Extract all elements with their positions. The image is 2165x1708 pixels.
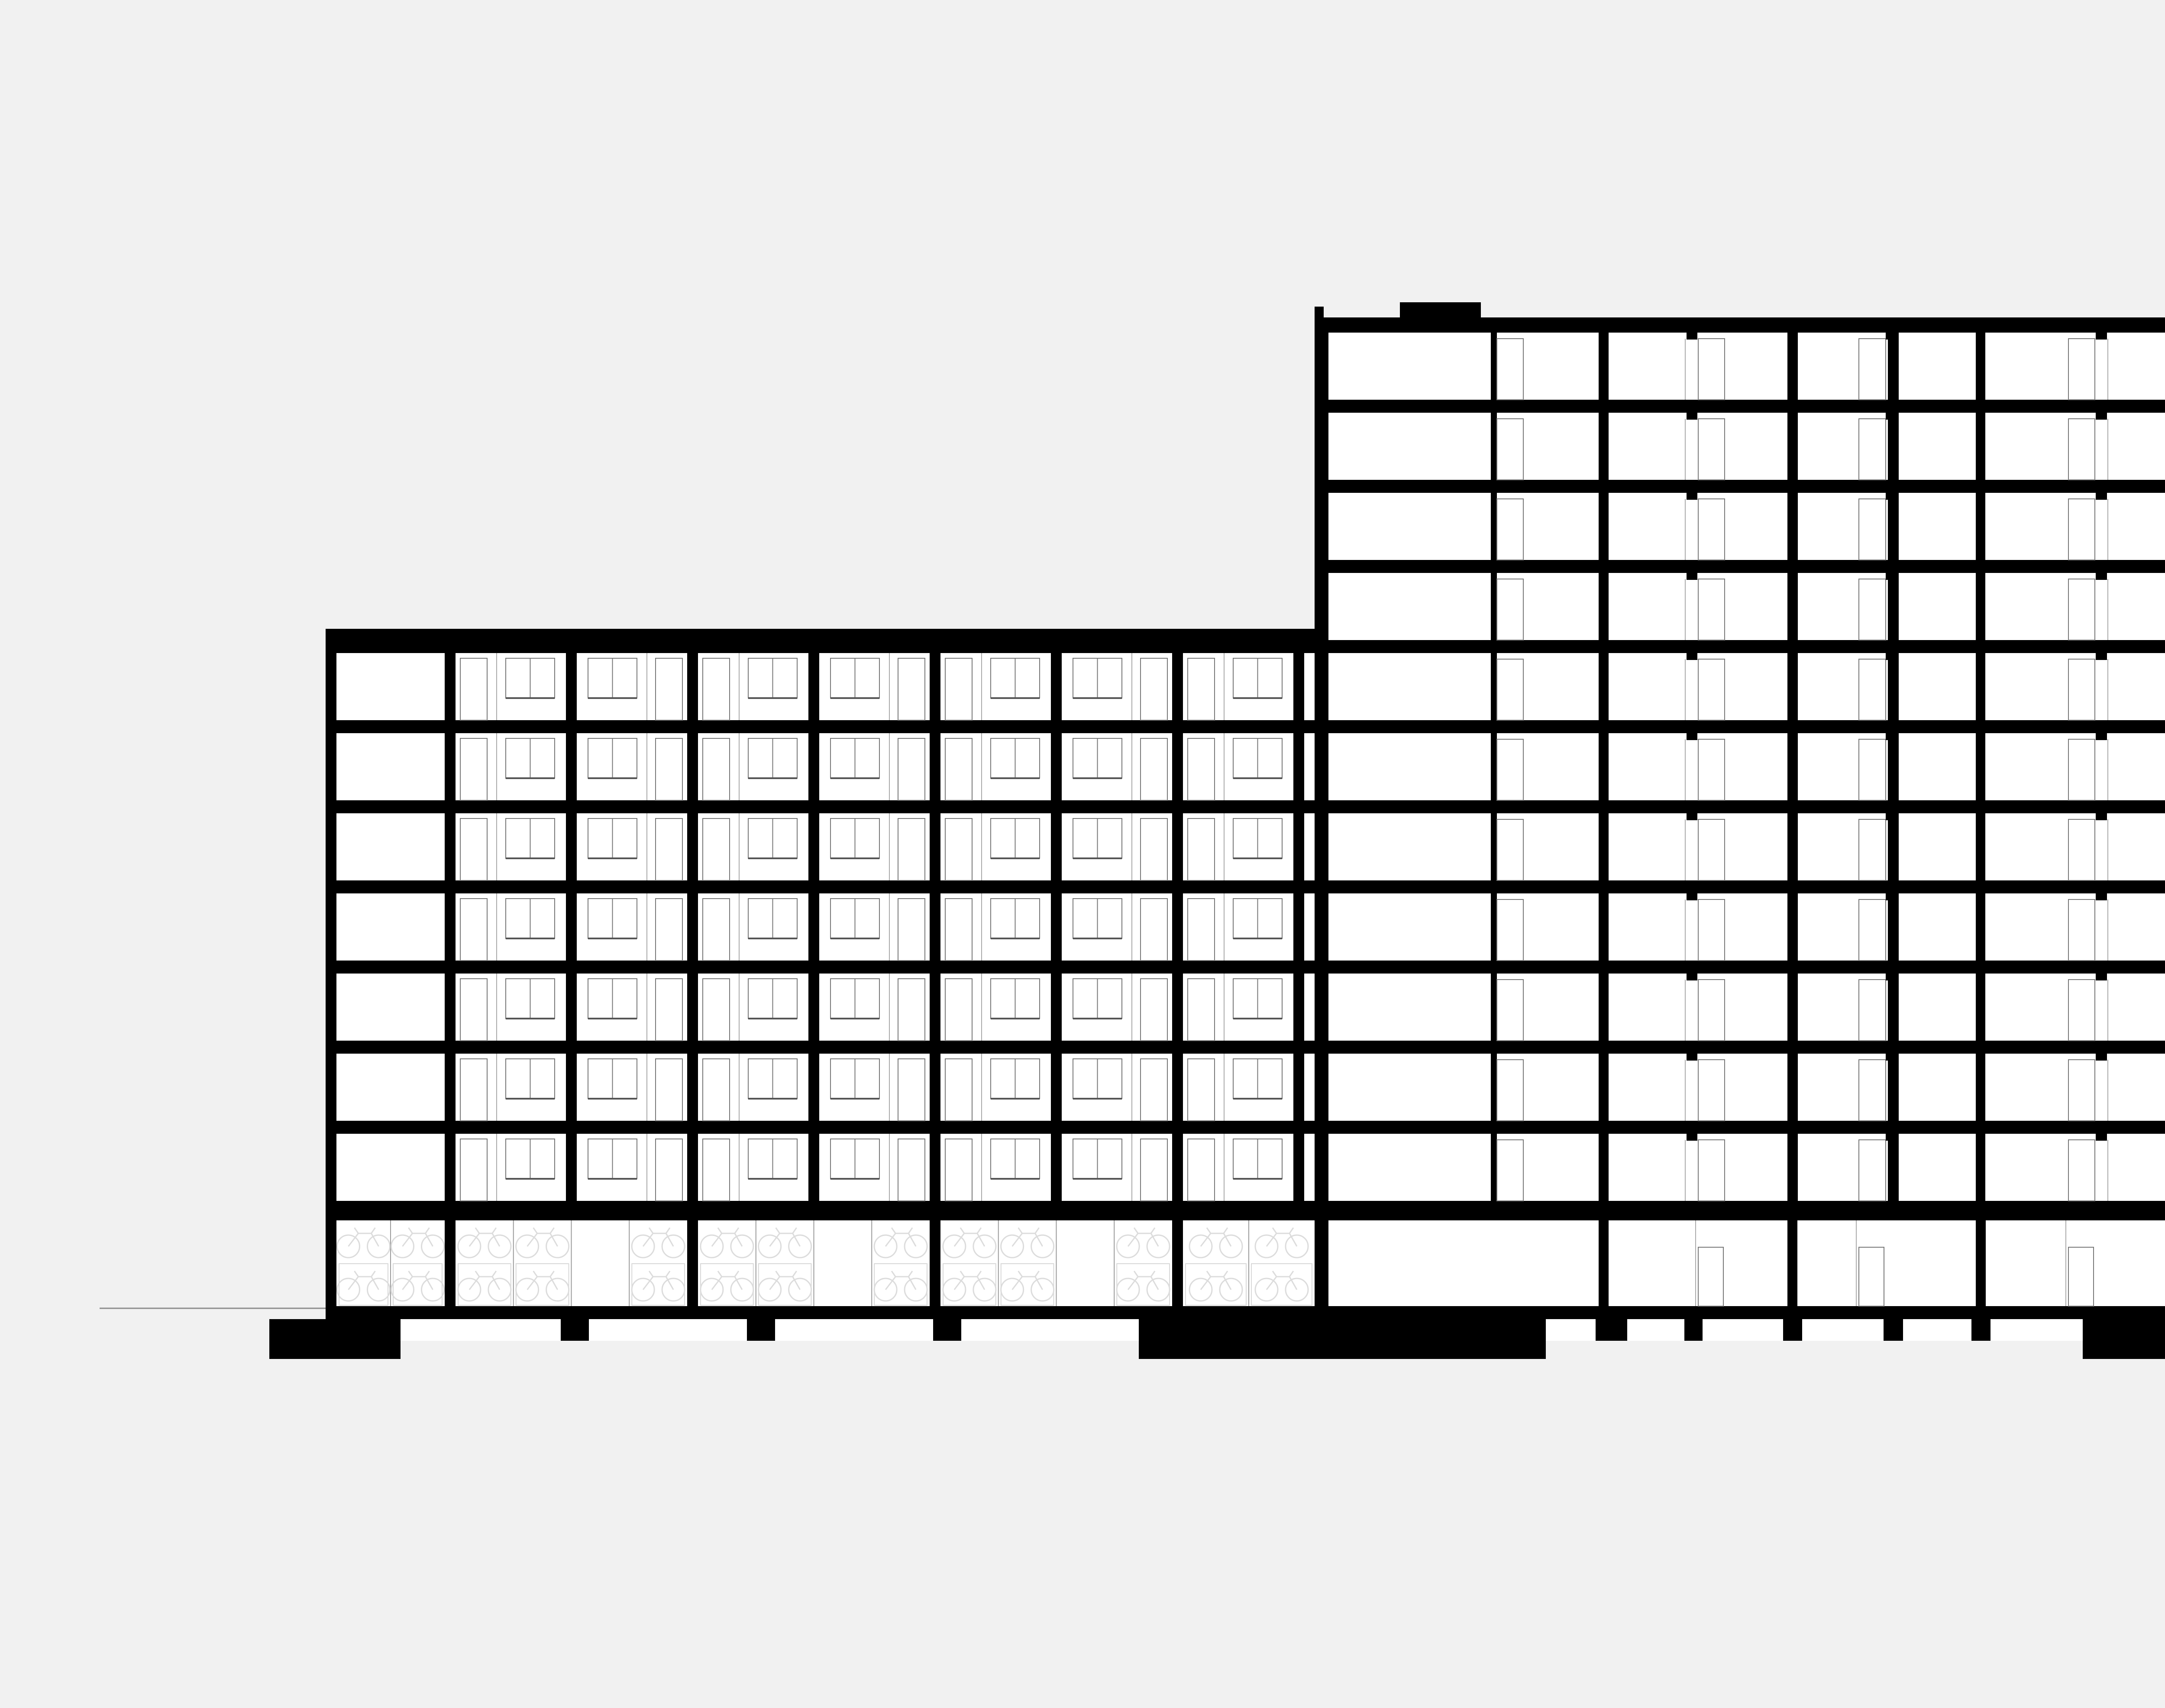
building-section-drawing — [0, 0, 2165, 1708]
tower — [1328, 333, 2165, 1201]
tower-ground-floor — [1328, 1220, 2165, 1306]
ground-floor-bike-storage — [336, 1220, 1315, 1306]
left-wing — [336, 653, 1315, 1201]
architectural-section-svg — [0, 0, 2165, 1708]
